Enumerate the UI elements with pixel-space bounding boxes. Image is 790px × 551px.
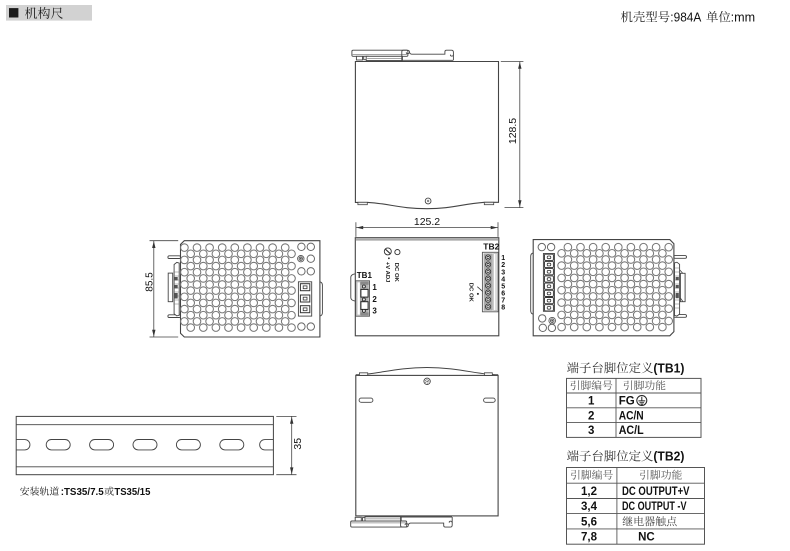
svg-text:1: 1: [588, 396, 595, 408]
svg-text:2: 2: [372, 295, 377, 304]
svg-text:3,4: 3,4: [581, 501, 598, 513]
svg-text:TB1: TB1: [357, 271, 373, 280]
svg-text:1: 1: [372, 283, 377, 292]
svg-text:2: 2: [501, 262, 505, 269]
svg-text:3: 3: [501, 269, 505, 276]
svg-text:DC OK: DC OK: [393, 263, 399, 283]
svg-text:FG: FG: [619, 396, 635, 408]
svg-text:3: 3: [372, 307, 377, 316]
svg-text:5,6: 5,6: [581, 516, 597, 528]
svg-text:4: 4: [501, 276, 505, 283]
svg-text::mm: :mm: [731, 10, 756, 24]
svg-text:6: 6: [501, 290, 505, 297]
svg-text:2: 2: [588, 410, 594, 422]
svg-text:(TB2): (TB2): [653, 449, 684, 464]
svg-text:DC OK: DC OK: [468, 283, 474, 303]
svg-text:1,2: 1,2: [581, 486, 597, 498]
svg-text:DC OUTPUT -V: DC OUTPUT -V: [622, 501, 687, 513]
svg-text:85.5: 85.5: [144, 272, 155, 292]
svg-text::TS35/7.5: :TS35/7.5: [61, 486, 104, 498]
svg-text:TB2: TB2: [483, 241, 499, 251]
svg-text:NC: NC: [638, 532, 655, 544]
svg-text:128.5: 128.5: [507, 118, 519, 144]
svg-text:5: 5: [501, 283, 505, 290]
svg-text:+V ADJ: +V ADJ: [384, 262, 390, 283]
svg-text:7,8: 7,8: [581, 532, 598, 544]
svg-text:(TB1): (TB1): [653, 360, 684, 375]
svg-text::984A: :984A: [670, 10, 702, 24]
svg-text:1: 1: [501, 255, 505, 262]
svg-text:TS35/15: TS35/15: [114, 486, 150, 498]
svg-text:3: 3: [588, 425, 594, 437]
svg-text:AC/L: AC/L: [619, 425, 644, 437]
svg-text:7: 7: [501, 297, 505, 304]
svg-text:35: 35: [292, 438, 304, 450]
svg-text:AC/N: AC/N: [619, 410, 644, 422]
svg-text:DC OUTPUT+V: DC OUTPUT+V: [622, 486, 690, 498]
svg-text:125.2: 125.2: [414, 216, 440, 228]
svg-text:8: 8: [501, 304, 505, 311]
